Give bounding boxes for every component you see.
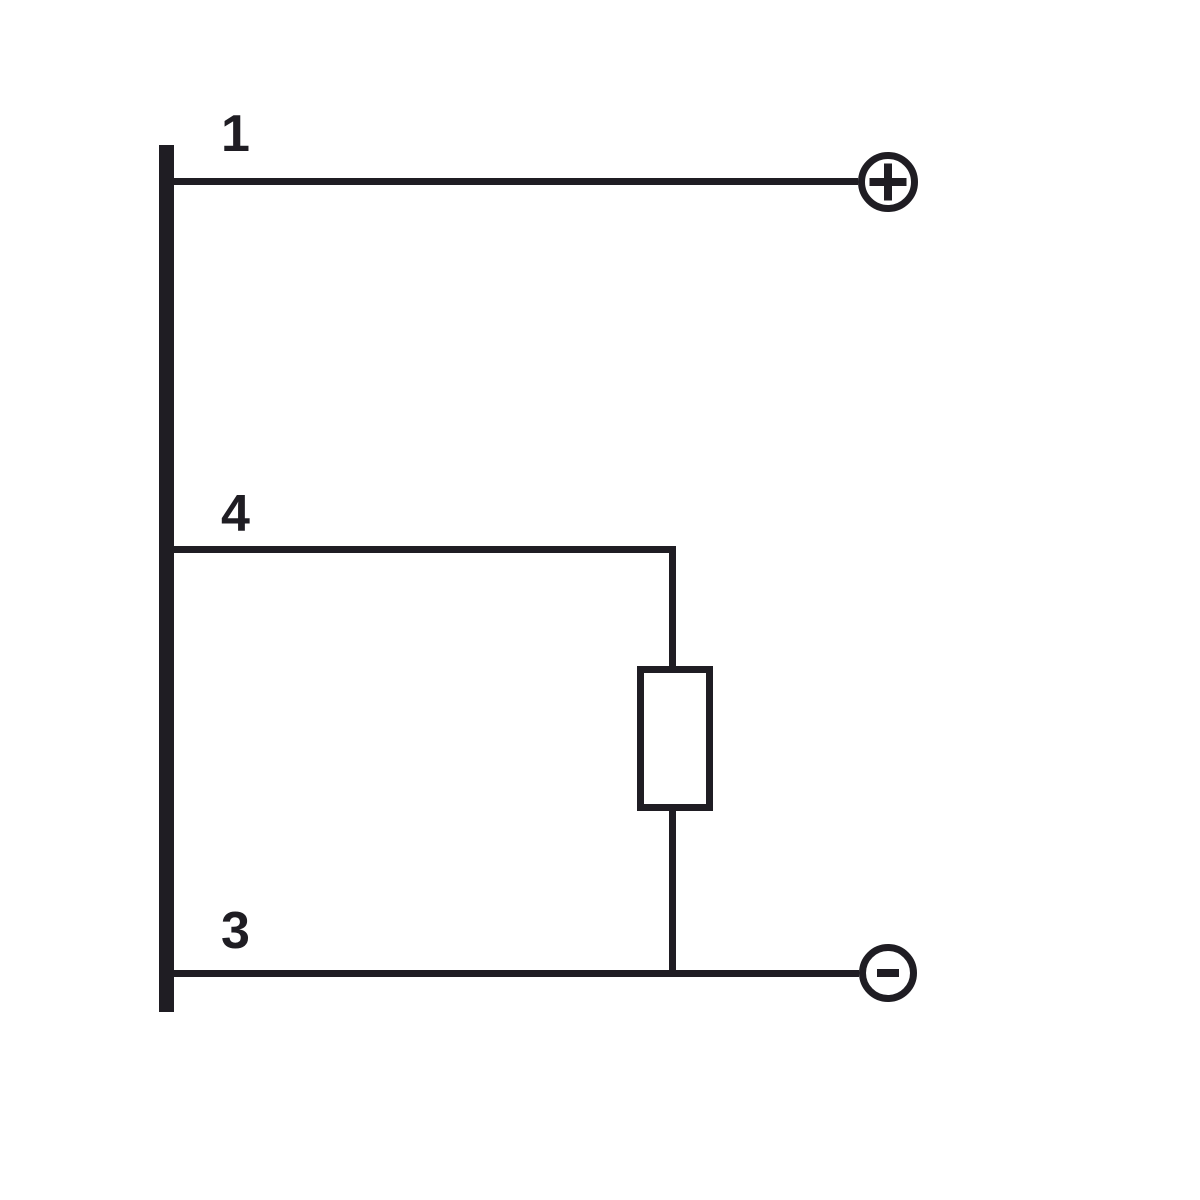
negative-terminal [859, 944, 917, 1002]
resistor [637, 666, 713, 811]
plus-icon [884, 164, 892, 201]
wire-1 [173, 178, 858, 185]
wire-3 [173, 970, 859, 977]
positive-terminal [858, 152, 918, 212]
wire-4 [173, 546, 676, 553]
wire-1-label: 1 [221, 108, 250, 160]
wire-3-label: 3 [221, 905, 250, 957]
wire-4-label: 4 [221, 488, 250, 540]
bus-bar [159, 145, 174, 1012]
wiring-diagram: 1 4 3 [0, 0, 1200, 1200]
minus-icon [877, 969, 899, 977]
